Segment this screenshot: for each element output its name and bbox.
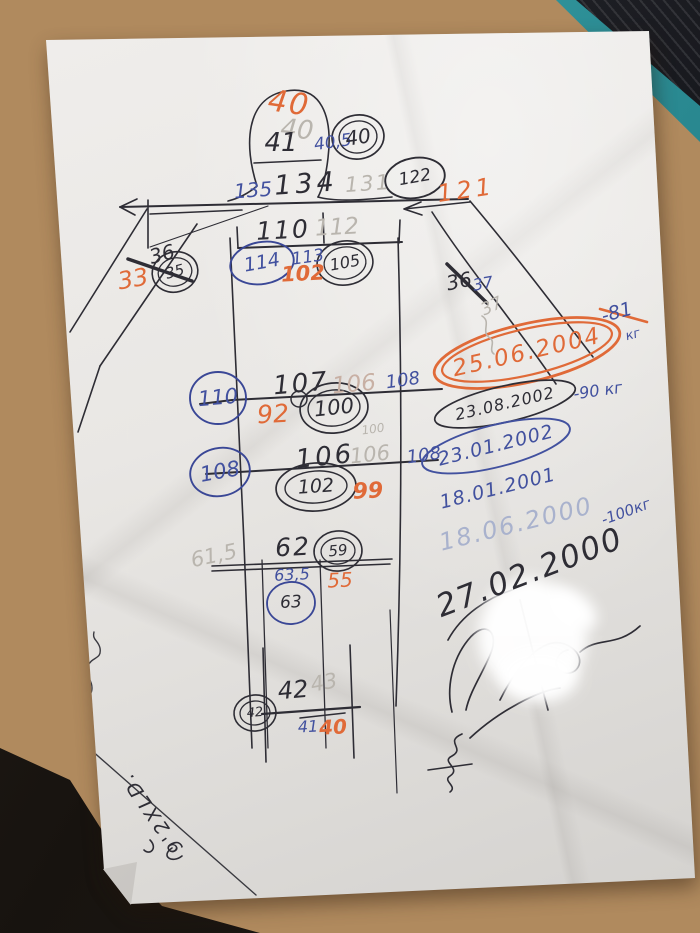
measurement-left-arm-orange: 33 (116, 265, 150, 294)
measurement-shoulders-circled: 122 (398, 167, 433, 189)
measurement-shoulders-black: 134 (273, 168, 338, 199)
measurement-waist-blue: 108 (385, 370, 422, 393)
measurement-ankle-orange: 40 (319, 716, 348, 737)
measurement-waist-black: 107 (272, 369, 330, 400)
measurement-chest-circled-left: 114 (242, 250, 281, 275)
measurement-waist-orange: 92 (256, 401, 289, 428)
weight-2004: -81 (600, 300, 635, 326)
measurement-thigh-black: 62 (274, 534, 311, 561)
measure-circles (148, 112, 448, 733)
photo-scene: 40 40 41 40,5 40 135 134 131 122 121 36 … (0, 0, 700, 933)
measurement-ankle-black: 42 (277, 677, 310, 704)
corner-note: 9'2XLD. (117, 768, 187, 856)
measurement-thigh-circled-below: 63 (280, 594, 303, 612)
date-2002-jan: 23.01.2002 (436, 422, 556, 469)
measurement-chest-circled-right: 105 (329, 252, 362, 273)
weight-2004-unit: кг (624, 327, 642, 343)
measurement-head-black: 41 (264, 130, 297, 156)
measurement-waist-ghost-small: 100 (361, 421, 385, 436)
measurement-ankle-circled-left: 42 (246, 706, 264, 720)
measurement-chest-orange: 102 (281, 262, 326, 285)
measurement-shoulders-blue: 135 (233, 179, 272, 202)
measurement-chest-black: 110 (256, 216, 311, 244)
measurement-thigh-orange: 55 (327, 569, 353, 590)
measurement-right-arm-blue: 37 (472, 274, 495, 293)
weight-2002-aug: -90 кг (572, 380, 623, 403)
blur-blob (500, 650, 578, 702)
measurement-ankle-blue: 41 (297, 718, 318, 735)
measurement-waist-circled-mid: 100 (313, 395, 355, 420)
measurement-thigh-ghost: 61,5 (189, 541, 239, 571)
measurement-right-arm-ghost: 37 (479, 295, 506, 320)
paper-sheet-wrap: 40 40 41 40,5 40 135 134 131 122 121 36 … (0, 0, 700, 933)
paper-sheet: 40 40 41 40,5 40 135 134 131 122 121 36 … (0, 0, 700, 933)
measurement-ankle-ghost: 43 (309, 670, 339, 695)
measurement-right-arm-black: 36 (444, 269, 473, 294)
measurement-hips-blue: 108 (406, 445, 443, 468)
measurement-hips-ghost: 106 (349, 442, 391, 467)
measurement-hips-circled-mid: 102 (297, 476, 335, 497)
measurement-shoulders-ghost: 131 (344, 172, 391, 196)
pen-scribbles (144, 734, 472, 859)
measurement-waist-circled-left: 110 (197, 386, 239, 410)
measurement-hips-black: 106 (294, 441, 355, 473)
measurement-shoulders-orange: 121 (436, 174, 497, 206)
measurement-thigh-blue: 63,5 (274, 566, 310, 584)
measurement-hips-orange: 99 (352, 480, 384, 504)
measurement-head-circled: 40 (344, 125, 372, 148)
measurement-thigh-circled-right: 59 (328, 543, 348, 560)
weight-2000-feb: -100кг (599, 496, 652, 528)
corner-writing-strokes (62, 632, 256, 895)
measurement-chest-ghost: 112 (314, 215, 359, 240)
measurement-left-arm-circled: 35 (164, 262, 186, 281)
date-2002-aug: 23.08.2002 (454, 385, 557, 423)
measurement-hips-circled-left: 108 (198, 458, 241, 486)
date-2004: 25.06.2004 (451, 325, 604, 382)
